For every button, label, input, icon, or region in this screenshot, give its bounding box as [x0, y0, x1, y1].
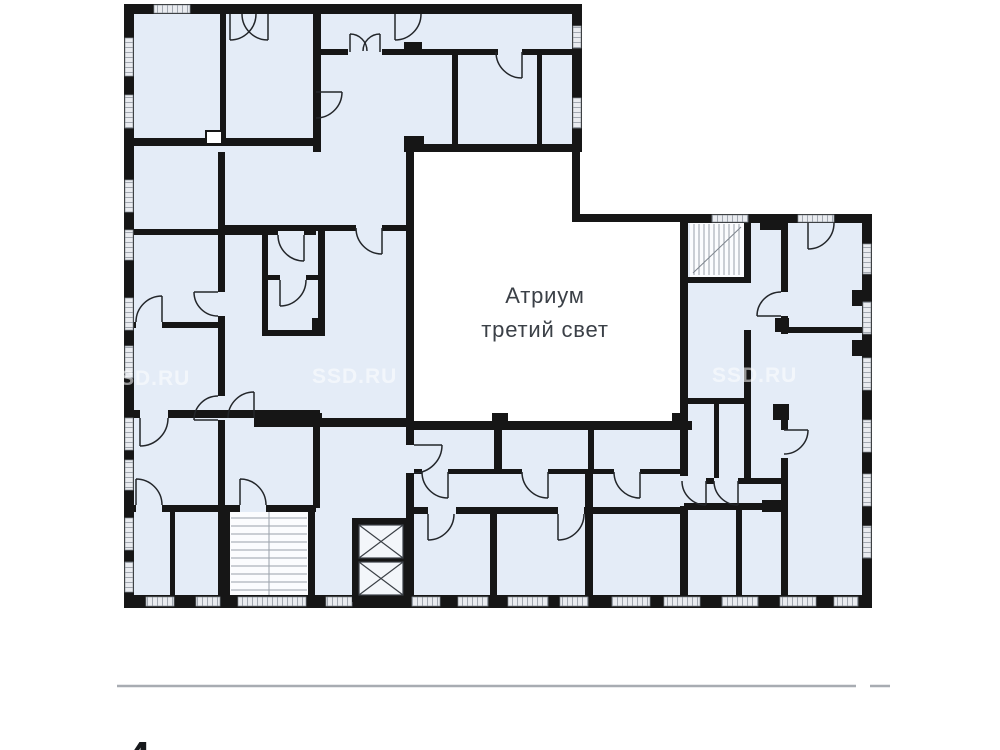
- floor-number: 4: [126, 733, 151, 750]
- elevator-shafts: [352, 518, 410, 602]
- duct-box: [206, 131, 222, 144]
- watermark-text: SSD.RU: [105, 367, 190, 390]
- watermark-text: SSD.RU: [712, 364, 797, 387]
- floor-plan: Атриум третий свет SSD.RU SSD.RU SSD.RU …: [0, 0, 1000, 750]
- floor-label: 4 этаж: [126, 733, 236, 750]
- floor-word: этаж: [162, 740, 236, 750]
- floor-plan-page: Атриум третий свет SSD.RU SSD.RU SSD.RU …: [0, 0, 1000, 750]
- atrium-label-line2: третий свет: [481, 317, 608, 342]
- watermark-text: SSD.RU: [312, 365, 397, 388]
- atrium-label-line1: Атриум: [505, 283, 584, 308]
